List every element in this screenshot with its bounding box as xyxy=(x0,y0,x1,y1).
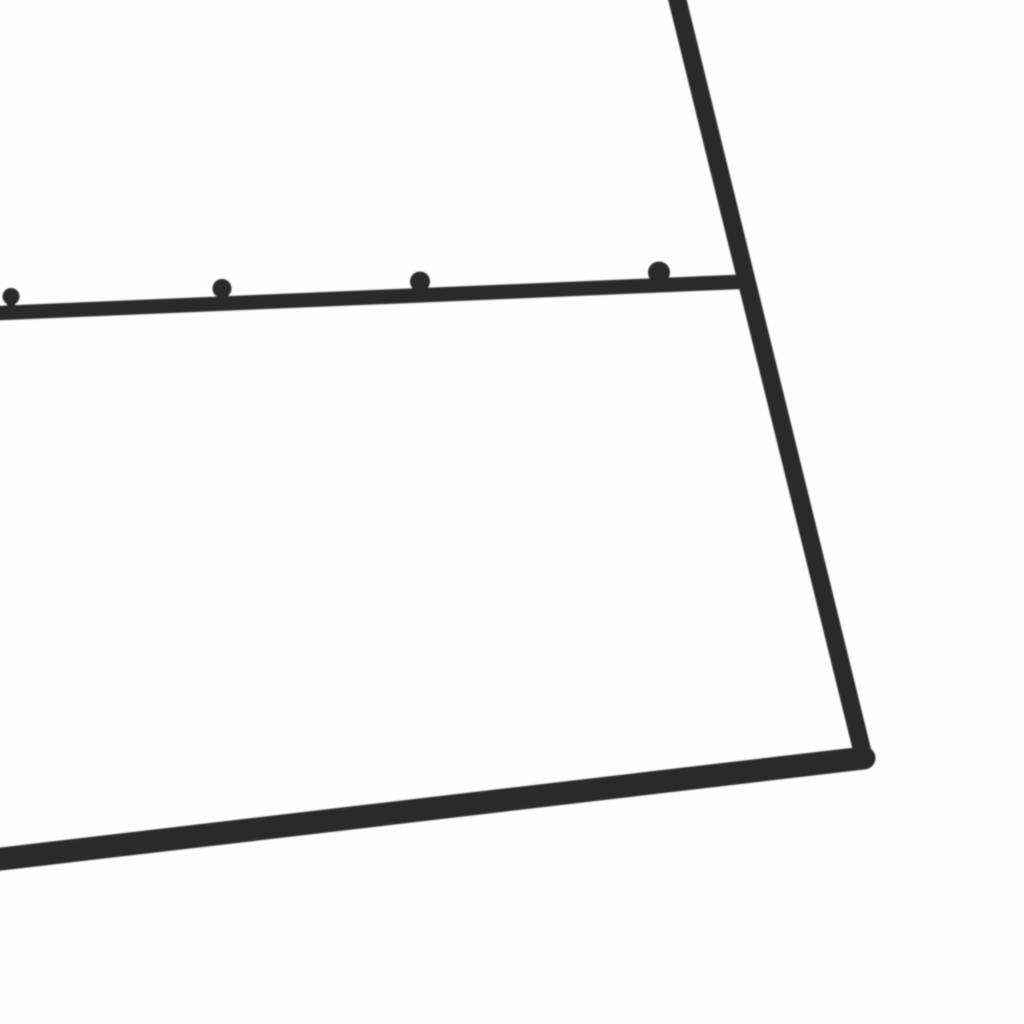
metal-frame-illustration xyxy=(0,0,1024,1024)
ball-knob-2 xyxy=(213,279,232,298)
hook-rail-bar xyxy=(0,282,748,314)
side-rail-bar xyxy=(674,0,864,758)
ball-knob-3 xyxy=(410,272,430,292)
ball-knob-4 xyxy=(648,262,670,284)
ball-knob-1 xyxy=(3,288,20,305)
bottom-rail-bar xyxy=(0,758,864,861)
metal-frame xyxy=(0,0,864,861)
product-photo xyxy=(0,0,1024,1024)
